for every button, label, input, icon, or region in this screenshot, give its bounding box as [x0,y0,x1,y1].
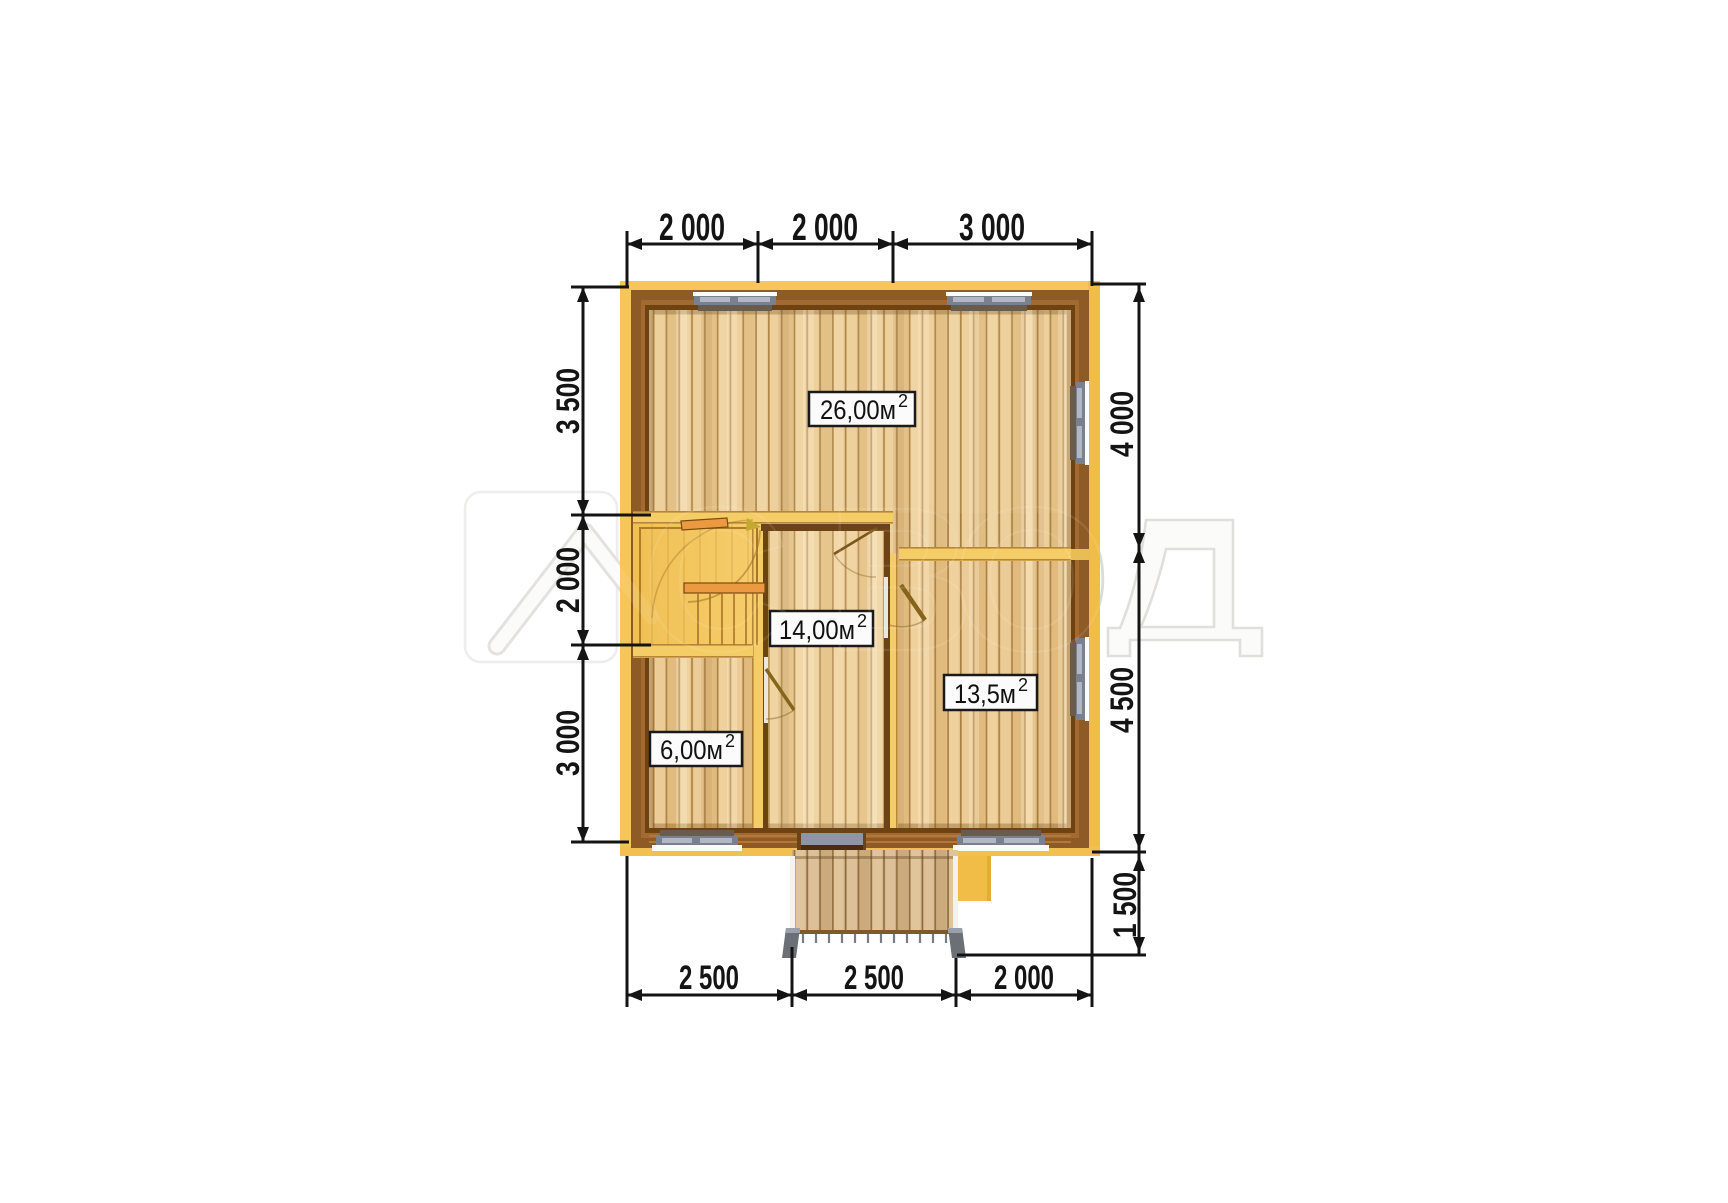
svg-text:3 000: 3 000 [959,207,1025,249]
svg-text:О: О [952,465,1111,694]
svg-text:2 000: 2 000 [792,207,858,249]
svg-text:2 000: 2 000 [659,207,725,249]
svg-text:2 500: 2 500 [844,959,904,997]
svg-text:2 000: 2 000 [550,547,586,613]
svg-text:26,00м: 26,00м [820,395,896,425]
svg-text:3 000: 3 000 [550,710,586,776]
svg-text:2: 2 [725,731,735,751]
svg-text:С: С [642,465,790,694]
svg-text:3 500: 3 500 [550,368,586,434]
svg-text:2 000: 2 000 [994,959,1054,997]
svg-text:6,00м: 6,00м [660,735,723,765]
svg-text:4 500: 4 500 [1104,667,1140,733]
svg-text:2: 2 [898,391,908,411]
svg-text:4 000: 4 000 [1104,391,1140,457]
svg-text:2 500: 2 500 [679,959,739,997]
svg-text:1 500: 1 500 [1107,872,1143,938]
